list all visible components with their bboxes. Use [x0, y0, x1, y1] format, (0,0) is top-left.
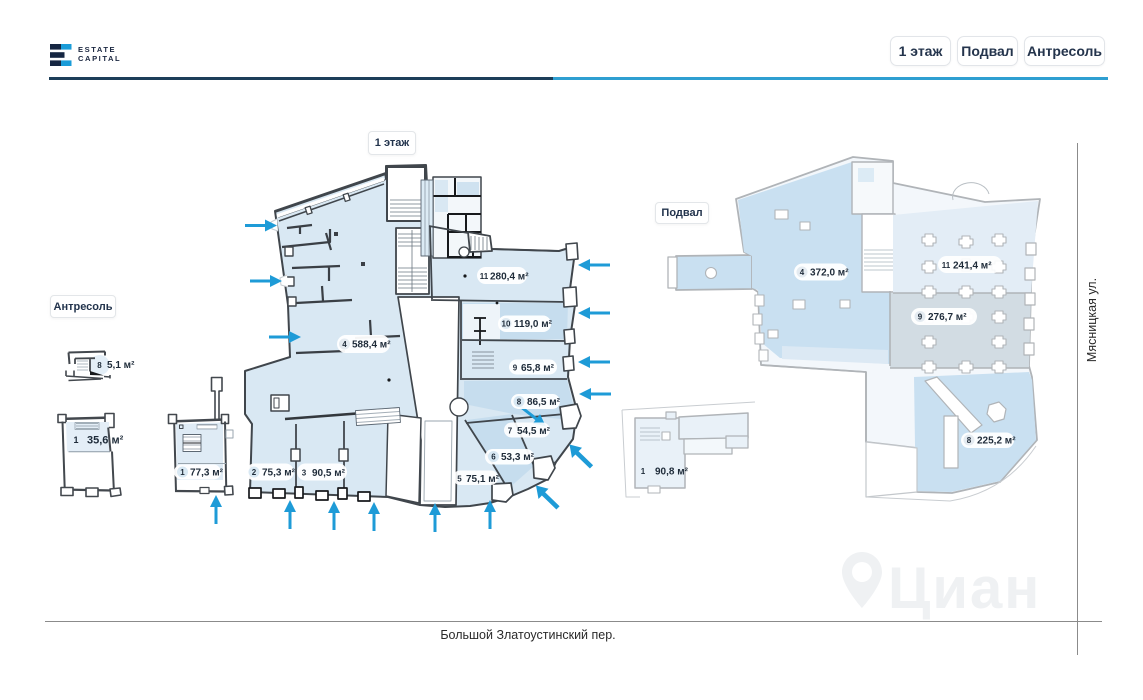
svg-text:7: 7 [508, 427, 513, 436]
svg-text:75,1 м²: 75,1 м² [466, 474, 500, 485]
svg-text:9: 9 [918, 313, 923, 322]
svg-text:11: 11 [942, 261, 951, 270]
svg-text:241,4 м²: 241,4 м² [953, 261, 992, 272]
svg-text:225,2 м²: 225,2 м² [977, 436, 1016, 447]
svg-text:35,6 м²: 35,6 м² [87, 435, 124, 447]
svg-text:4: 4 [800, 268, 805, 277]
svg-text:372,0 м²: 372,0 м² [810, 268, 849, 279]
svg-text:90,5 м²: 90,5 м² [312, 468, 346, 479]
svg-text:6: 6 [491, 453, 496, 462]
svg-text:1: 1 [180, 468, 185, 477]
svg-text:54,5 м²: 54,5 м² [517, 426, 551, 437]
svg-text:86,5 м²: 86,5 м² [527, 397, 561, 408]
svg-text:90,8 м²: 90,8 м² [655, 467, 689, 478]
svg-text:Циан: Циан [888, 556, 1041, 621]
svg-text:1: 1 [73, 435, 78, 445]
svg-text:4: 4 [342, 340, 347, 349]
svg-text:276,7 м²: 276,7 м² [928, 312, 967, 323]
svg-text:119,0 м²: 119,0 м² [514, 319, 553, 330]
svg-text:53,3 м²: 53,3 м² [501, 452, 535, 463]
svg-text:1: 1 [641, 467, 646, 476]
svg-text:8: 8 [97, 361, 102, 370]
svg-text:10: 10 [502, 320, 511, 329]
svg-text:2: 2 [252, 468, 257, 477]
svg-text:75,3 м²: 75,3 м² [262, 468, 296, 479]
svg-text:9: 9 [513, 364, 518, 373]
svg-text:8: 8 [517, 398, 522, 407]
svg-text:5: 5 [457, 475, 462, 484]
svg-text:8: 8 [967, 436, 972, 445]
svg-text:Мясницкая ул.: Мясницкая ул. [1085, 278, 1099, 362]
svg-text:11: 11 [480, 272, 489, 281]
svg-text:5,1 м²: 5,1 м² [107, 360, 135, 371]
svg-text:280,4 м²: 280,4 м² [490, 272, 529, 283]
svg-text:3: 3 [302, 469, 307, 478]
svg-text:Большой Златоустинский пер.: Большой Златоустинский пер. [440, 628, 615, 642]
svg-text:77,3 м²: 77,3 м² [190, 468, 224, 479]
svg-text:65,8 м²: 65,8 м² [521, 363, 555, 374]
svg-text:588,4 м²: 588,4 м² [352, 340, 391, 351]
